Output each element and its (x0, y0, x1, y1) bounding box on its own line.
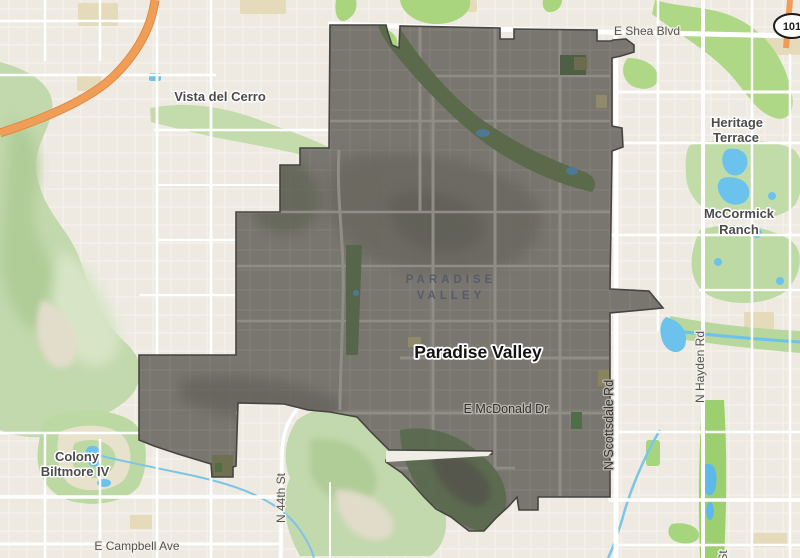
label-shea-blvd: E Shea Blvd (614, 24, 680, 38)
map-canvas[interactable]: E Shea Blvd Vista del Cerro Heritage Ter… (0, 0, 800, 558)
label-mccormick-ranch-2: Ranch (719, 222, 759, 237)
label-44th-st: N 44th St (274, 472, 288, 523)
label-vista-del-cerro: Vista del Cerro (174, 89, 266, 104)
label-area-valley: VALLEY (417, 290, 486, 302)
label-area-paradise: PARADISE (406, 274, 497, 286)
label-heritage-terrace-2: Terrace (713, 130, 759, 145)
label-mccormick-ranch-1: McCormick (704, 206, 775, 221)
label-scottsdale-rd: N Scottsdale Rd (602, 380, 616, 470)
map-container: E Shea Blvd Vista del Cerro Heritage Ter… (0, 0, 800, 558)
label-mcdonald-dr: E McDonald Dr (464, 402, 549, 416)
label-colony-biltmore-1: Colony (55, 449, 100, 464)
label-partial-st: St (716, 550, 730, 558)
label-city-paradise-valley: Paradise Valley (414, 342, 542, 362)
highway-101-shield: 101 (774, 14, 800, 38)
highway-101-shield-number: 101 (783, 21, 800, 33)
label-campbell-ave: E Campbell Ave (94, 539, 179, 553)
label-colony-biltmore-2: Biltmore IV (41, 464, 110, 479)
label-hayden-rd: N Hayden Rd (693, 331, 707, 403)
label-heritage-terrace-1: Heritage (711, 115, 763, 130)
